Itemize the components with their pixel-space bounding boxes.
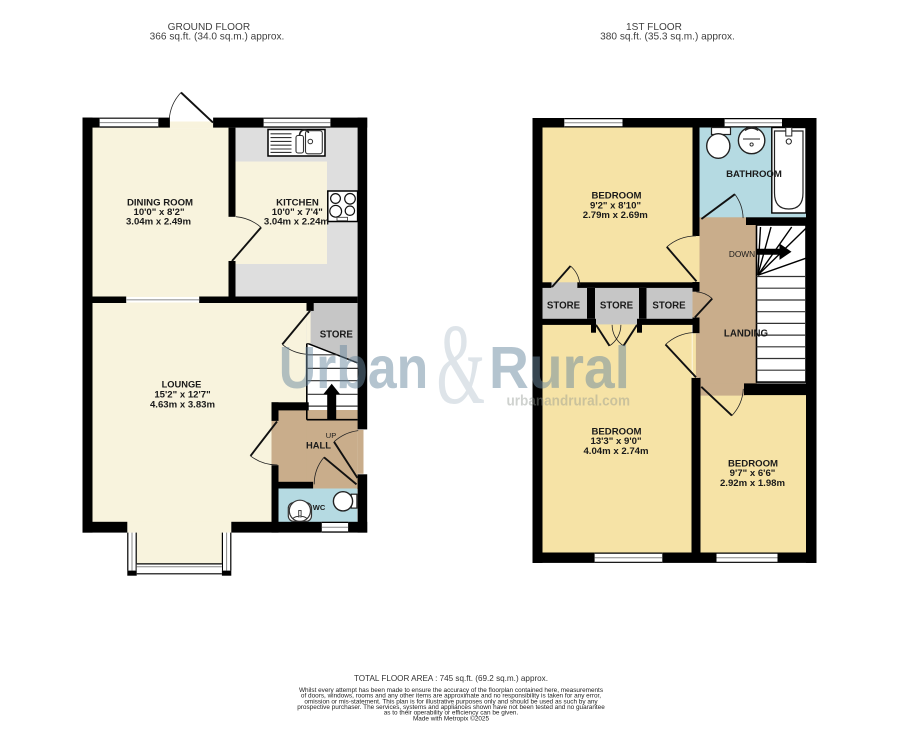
svg-text:&: &	[437, 301, 486, 429]
svg-text:3.04m x 2.49m: 3.04m x 2.49m	[126, 217, 191, 228]
svg-text:366 sq.ft. (34.0 sq.m.) approx: 366 sq.ft. (34.0 sq.m.) approx.	[150, 32, 285, 43]
svg-text:STORE: STORE	[652, 300, 686, 311]
svg-text:Urban: Urban	[279, 335, 429, 401]
svg-text:STORE: STORE	[600, 300, 634, 311]
svg-text:3.04m x 2.24m: 3.04m x 2.24m	[264, 217, 329, 228]
svg-text:LANDING: LANDING	[724, 328, 768, 339]
svg-text:WC: WC	[313, 503, 326, 512]
svg-text:4.63m x 3.83m: 4.63m x 3.83m	[150, 399, 215, 410]
svg-text:DOWN: DOWN	[729, 249, 755, 259]
svg-text:UP: UP	[326, 431, 336, 440]
svg-text:Rural: Rural	[489, 335, 630, 401]
svg-text:BATHROOM: BATHROOM	[726, 169, 782, 180]
svg-text:2.92m x 1.98m: 2.92m x 1.98m	[720, 478, 785, 489]
svg-text:2.79m x 2.69m: 2.79m x 2.69m	[583, 210, 648, 221]
svg-text:urbanandrural.com: urbanandrural.com	[507, 393, 631, 409]
svg-text:LOUNGE: LOUNGE	[162, 380, 202, 390]
svg-text:TOTAL FLOOR AREA : 745 sq.ft.: TOTAL FLOOR AREA : 745 sq.ft. (69.2 sq.m…	[354, 674, 548, 683]
svg-text:Made with Metropix ©2025: Made with Metropix ©2025	[413, 714, 490, 722]
svg-text:STORE: STORE	[547, 300, 581, 311]
svg-text:HALL: HALL	[306, 439, 331, 450]
svg-text:380 sq.ft. (35.3 sq.m.) approx: 380 sq.ft. (35.3 sq.m.) approx.	[600, 32, 735, 43]
svg-text:4.04m x 2.74m: 4.04m x 2.74m	[583, 446, 648, 457]
